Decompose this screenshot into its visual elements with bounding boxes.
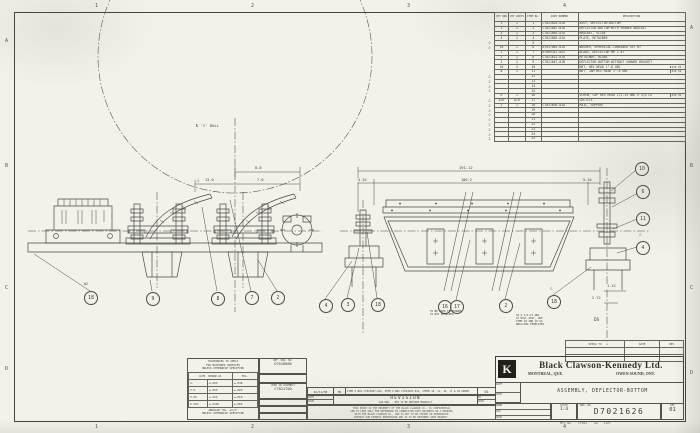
sepia-empty-row (566, 348, 684, 355)
revision-date-apvd-cell: DATE APVD (307, 395, 334, 405)
parts-list-header: QTY ORD QTY UNITS ITEM No. PART NUMBER D… (485, 13, 685, 22)
ref-empty-row (259, 374, 307, 383)
zone-top-1: 1 (95, 3, 98, 9)
cell-description-text: LOCTITE (580, 98, 593, 102)
company-city-right: OWEN SOUND, ONT. (616, 372, 655, 377)
col-description: DESCRIPTION (578, 13, 685, 22)
company-name: Black Clawson-Kennedy Ltd. (521, 360, 681, 370)
proprietary-note: THIS PRINT IS THE PROPERTY OF THE BLACK … (307, 405, 496, 420)
tol-mid: ±.XXX (208, 379, 233, 386)
dim-13: 13.0 (204, 178, 215, 182)
tol-mid: ±.XXX (208, 393, 233, 400)
tol-val: ±.020 (233, 386, 258, 393)
mtl-code-a: AA (594, 421, 598, 425)
balloon-2: 2 (499, 299, 513, 313)
zone-bottom-3: 3 (407, 424, 410, 430)
mtl-value: C7021 (578, 421, 587, 425)
balloon-6: 6 (636, 185, 650, 199)
title-divider (495, 382, 684, 383)
cell-material: 316 SS (670, 70, 684, 73)
tol-row: X.XX ±.XXX ±.010 (189, 393, 258, 400)
title-date-apvd-cell: DATE APVD (495, 382, 521, 403)
revision-date: 01/11/98 (307, 387, 334, 395)
delta-icon: △ (197, 178, 199, 182)
zone-top-4: 4 (563, 3, 566, 9)
dim-8: 8.0 (254, 166, 263, 170)
tolerance-block: TOLERANCES TO APPLY FOR MACHINED SURFACE… (187, 358, 259, 420)
mtl-label: MTL NO. (560, 421, 573, 425)
used-in-assembly-block: USED IN ASSEMBLY C7021700 (259, 383, 307, 399)
tol-val: ±.010 (233, 393, 258, 400)
sepia-header-row: SEPIA TO DATE REV (566, 341, 684, 348)
sepia-col-rev: REV (660, 341, 684, 348)
tol-row: X.X ±.XXX ±.020 (189, 386, 258, 393)
zone-top-3: 3 (407, 3, 410, 9)
zone-left-a: A (5, 38, 8, 44)
tol-val: ±.040 (233, 379, 258, 386)
parts-row: △ 25 (485, 137, 685, 142)
revision-delta-icon: △ (485, 137, 495, 142)
c-roll-centerline-label: ℄ 'C' ROLL (196, 124, 219, 128)
cell-description-text: RAIL, SUPPORT (580, 103, 604, 107)
cell-description-text: BRACKET, SLIDE (580, 31, 606, 35)
used-in-value: C7021700 (260, 387, 306, 391)
drawing-sheet: 1 2 3 4 1 2 3 4 A B C D A B C D QTY ORD … (0, 0, 700, 433)
dim-534-left: 5.34 (357, 178, 368, 182)
ref-empty-row (259, 406, 307, 413)
cell-description-text: NUT, HEX HEAD 1"-8 UNC (580, 65, 621, 69)
tol-dim: X.XXX (189, 400, 208, 407)
signature-cell: DRWN CKD APVD (495, 403, 551, 420)
cell-qty-ord (495, 137, 509, 142)
col-item-no: ITEM No. (526, 13, 542, 22)
cell-description-text: RETAINER, BLADE (580, 55, 608, 59)
tol-dim: X.XX (189, 393, 208, 400)
balloon-4-delta: 4 (636, 241, 650, 255)
tol-col-tol: TOL. (233, 372, 258, 379)
zone-left-d: D (5, 366, 8, 372)
zone-top-2: 2 (251, 3, 254, 9)
balloon-2: 2 (271, 291, 285, 305)
cell-description-text: DEFLECTOR-BOTTOM WITHOUT SHOWER BRACKET (580, 60, 653, 64)
title-apvd-label: APVD (496, 393, 520, 396)
rev-cell: REV 01 (661, 403, 684, 420)
drawing-title: ASSEMBLY, DEFLECTOR-BOTTOM (521, 389, 684, 395)
balloon-8: 8 (211, 292, 225, 306)
tol-mid: ±.XXX (208, 386, 233, 393)
tol-header-row: DIM. SHOWN AS TOL. (189, 372, 258, 379)
revision-by-apvd-cell: BY APVD (477, 395, 496, 405)
balloon-10: 10 (635, 162, 649, 176)
company-city-left: MONTREAL, QUE. (528, 372, 563, 377)
delta-icon: △ (550, 286, 552, 290)
balloon-18: 18 (371, 298, 385, 312)
title-date-label: DATE (496, 383, 520, 393)
rev-value: 01 (662, 407, 683, 413)
shower-note: TO BE USED IF SHOWER IS NOT REQUIRED (430, 311, 461, 317)
col-qty-ord: QTY ORD (495, 13, 509, 22)
ds-label: DS (594, 318, 599, 323)
tol-angular-2: UNLESS OTHERWISE SPECIFIED (188, 412, 258, 416)
zone-bottom-1: 1 (95, 424, 98, 430)
revision-number: 01 (477, 387, 496, 395)
revision-title-cell: REVISION CAD DWG. - NOT TO BE REVISED MA… (333, 395, 478, 405)
company-logo-icon: K (498, 360, 516, 378)
mtl-strip: MTL NO. C7021 AA 1127 (560, 422, 611, 425)
scale-cell: SCALE 1:4 (551, 403, 577, 420)
tol-dim: X.X (189, 386, 208, 393)
parts-list: QTY ORD QTY UNITS ITEM No. PART NUMBER D… (485, 12, 686, 142)
cell-description-text: PLATE, RETAINER (580, 36, 608, 40)
cell-description-text: DEFLECTOR-BOTTOM WITH SHOWER BRACKET (580, 26, 647, 30)
cell-description-text: ASSY, DEFLECTOR-BOTTOM (580, 22, 621, 26)
tol-mid: ±.XXXX (208, 400, 233, 407)
dwg-no-cell: DWG. NO. D7021626 (577, 403, 661, 420)
shower-note-line2: IS NOT REQUIRED (430, 314, 461, 317)
sepia-col-date: DATE (625, 341, 660, 348)
zone-left-c: C (5, 285, 8, 291)
balloon-11: 11 (636, 212, 650, 226)
dwg-no-value: D7021626 (578, 407, 660, 416)
cell-material: 316 SS (670, 66, 684, 69)
cell-qty-units (508, 137, 525, 142)
zone-bottom-2: 2 (251, 424, 254, 430)
cell-description-text: NUT, JAM HEX HEAD 1"-8 UNC (580, 69, 628, 73)
drill-note: 18 X 1/2-13 UNC AT MILL ASSY, USE ITEM 1… (516, 315, 544, 327)
dim-534-right: 5.34 (582, 178, 593, 182)
balloon-4: 4 (319, 299, 333, 313)
tol-row: X.XXX ±.XXXX ±.005 (189, 400, 258, 407)
cell-part-number (541, 137, 578, 142)
dim-overall: 191.12 (458, 166, 474, 170)
cell-description-text: WASHER, SPHERICAL-COMBINED SET #7 (580, 45, 641, 49)
tol-dim: X. (189, 379, 208, 386)
tol-row: X. ±.XXX ±.040 (189, 379, 258, 386)
cell-description (578, 137, 685, 142)
dim-7: 7.0 (256, 178, 265, 182)
apvd-label: APVD (496, 416, 550, 419)
ref-dwg-block: REF. DWG. NO. D7018086 (259, 358, 307, 374)
ref-empty-row (259, 413, 307, 420)
revision-apvd-label: APVD (478, 400, 495, 403)
cell-item-no: 25 (526, 137, 542, 142)
tol-title-3: UNLESS OTHERWISE SPECIFIED (188, 367, 258, 371)
balloon-3: 3 (341, 298, 355, 312)
balloon-9: 9 (146, 292, 160, 306)
ref-dwg-value: D7018086 (260, 362, 306, 366)
cell-description-text: BLADE, DEFLECTOR MK 2 #7 (580, 50, 625, 54)
legal-line4: WITHOUT OUR EXPRESS PERMISSION AND IS TO… (308, 416, 495, 419)
zone-right-a: A (690, 25, 693, 31)
zone-right-b: B (690, 163, 693, 169)
zone-right-c: C (690, 285, 693, 291)
drill-note-line4: DRILLING TEMPLATES (516, 324, 544, 327)
tol-col-dim: DIM. SHOWN AS (189, 372, 233, 379)
col-qty-units: QTY UNITS (508, 13, 525, 22)
weld-note: #2 (84, 283, 88, 287)
cell-description-text: SCREW, CAP HEX HEAD 1/2-13 UNC X 3/4 LG (580, 93, 653, 97)
balloon-18-delta: 18 (547, 295, 561, 309)
delta-icon: △ (639, 232, 641, 236)
mtl-code-b: 1127 (603, 421, 610, 425)
revision-subtitle: CAD DWG. - NOT TO BE REVISED MANUALLY (334, 401, 477, 404)
balloon-7: 7 (245, 291, 259, 305)
sepia-col-sepia-to: SEPIA TO (566, 341, 625, 348)
balloon-18: 18 (84, 291, 98, 305)
cell-material: 316 SS (670, 94, 684, 97)
tol-val: ±.005 (233, 400, 258, 407)
scale-value: 1:4 (552, 407, 576, 412)
revision-apvd-label: APVD (308, 400, 333, 403)
dim-272: 2.72 (591, 296, 602, 300)
zone-left-b: B (5, 163, 8, 169)
revision-description: ITEM 2 WAS C7021687-01A, ITEM 9 WAS C702… (345, 387, 478, 395)
ref-empty-row (259, 399, 307, 406)
col-part-number: PART NUMBER (541, 13, 578, 22)
dim-180: 180.2 (460, 178, 473, 182)
dim-112: 1.12 (606, 284, 617, 288)
zone-right-d: D (690, 370, 693, 376)
